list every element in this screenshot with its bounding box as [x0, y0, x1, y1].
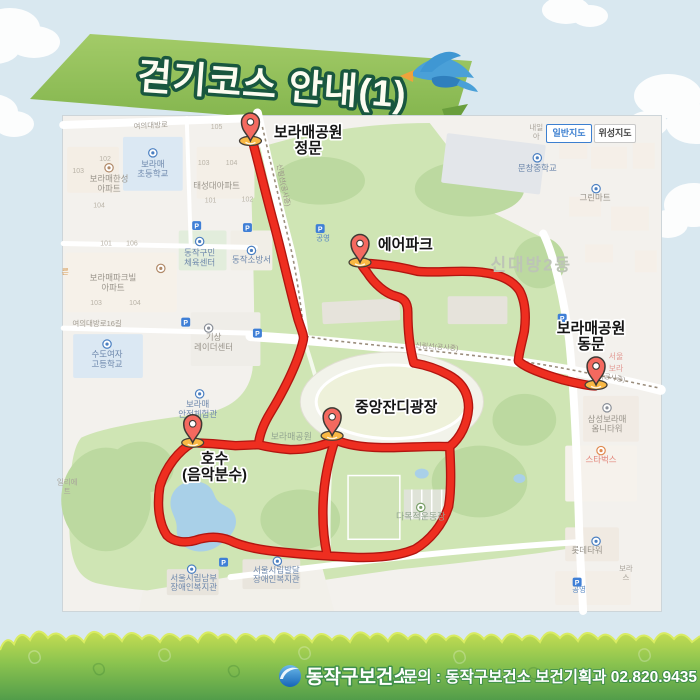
poi-icon [149, 149, 157, 157]
poi-icon [603, 404, 611, 412]
map-label: 롯데타워 [572, 545, 603, 555]
org-name: 동작구보건소 [306, 666, 411, 688]
parking-icon: P [253, 329, 262, 338]
svg-text:P: P [221, 560, 226, 567]
parking-icon: P [219, 558, 228, 567]
parking-icon: P [316, 224, 325, 233]
poi-icon [195, 390, 203, 398]
map-label: 106 [126, 240, 138, 247]
map-label: 동작소방서 [232, 254, 271, 264]
parking-icon: P [181, 318, 190, 327]
map-label: 103 [72, 168, 84, 175]
svg-text:P: P [194, 224, 199, 231]
map-label: 105 [211, 124, 223, 131]
map-label: 102 [99, 156, 111, 163]
poi-icon [273, 557, 281, 565]
poi-icon [592, 537, 600, 545]
parking-icon: P [192, 221, 201, 230]
map-label: 서울시립남부장애인복지관 [170, 573, 217, 592]
map-label: 서울시립발달장애인복지관 [253, 565, 300, 584]
map-label: 여의대방로16길 [72, 318, 122, 328]
svg-text:P: P [255, 331, 260, 338]
map-label: 104 [129, 300, 141, 307]
poi-icon [195, 237, 203, 245]
map-marker-boramae-main-gate [239, 113, 261, 145]
map-label: 여의대방로 [133, 119, 168, 131]
map-panel[interactable]: PPPPPPPP 보라매초등학교보라매한성아파트태성대아파트보라매파크빌아파트여… [62, 115, 662, 612]
map-type-satellite-button[interactable]: 위성지도 [594, 124, 636, 143]
poi-icon [533, 154, 541, 162]
svg-text:P: P [245, 226, 250, 233]
map-label: 태성대아파트 [193, 181, 240, 191]
map-label: 스타벅스 [585, 455, 616, 465]
contact-info: 문의 : 동작구보건소 보건기획과 02.820.9435 [403, 668, 697, 686]
map-label: 103 [198, 160, 210, 167]
grass-footer: 동작구보건소 문의 : 동작구보건소 보건기획과 02.820.9435 [0, 631, 700, 700]
map-label: 그린마트 [580, 193, 611, 203]
map-label: 공영 [572, 584, 586, 594]
map-marker-label: 중앙잔디광장 [355, 398, 438, 416]
map-label: 동작구민체육센터 [184, 247, 215, 267]
poi-icon [592, 185, 600, 193]
map-label: 104 [93, 203, 105, 210]
map-marker-central-lawn-plaza [321, 408, 343, 440]
org-logo-icon [279, 665, 301, 687]
poi-icon [247, 246, 255, 254]
parking-icon: P [243, 223, 252, 232]
map-label: 다목적운동장 [396, 510, 445, 521]
map-label: 101 [205, 198, 217, 205]
poi-icon [188, 565, 196, 573]
map-marker-label: 에어파크 [378, 236, 433, 253]
poi-icon [105, 164, 113, 172]
poster: 걷기코스 안내(1) [0, 0, 700, 700]
map-label: 보라매공원 [271, 432, 312, 442]
map-label: 수도여자고등학교 [91, 349, 122, 369]
map-label: 102 [242, 197, 254, 204]
map-marker-boramae-east-gate [585, 357, 607, 389]
svg-text:P: P [318, 227, 323, 234]
map-label: 문창중학교 [518, 163, 557, 173]
map-label: 104 [226, 160, 238, 167]
map-marker-air-park [349, 235, 371, 267]
map-label: 공영 [316, 232, 330, 242]
poi-icon [597, 446, 605, 454]
map-label: 삼성보라매옴니타워 [588, 414, 627, 434]
poi-icon [417, 503, 425, 511]
poi-icon [157, 264, 165, 272]
map-label: 신대방2동 [490, 255, 572, 274]
poi-icon [103, 340, 111, 348]
map-label: 른 [62, 267, 69, 276]
map-marker-lake-music-fountain [182, 415, 204, 447]
svg-text:P: P [183, 320, 188, 327]
map-label: 보라매초등학교 [137, 159, 168, 179]
map-label: 101 [100, 240, 112, 247]
map-type-normal-button[interactable]: 일반지도 [546, 124, 592, 143]
map-label: 103 [90, 300, 102, 307]
poi-icon [204, 324, 212, 332]
map-canvas[interactable]: PPPPPPPP 보라매초등학교보라매한성아파트태성대아파트보라매파크빌아파트여… [62, 115, 662, 612]
